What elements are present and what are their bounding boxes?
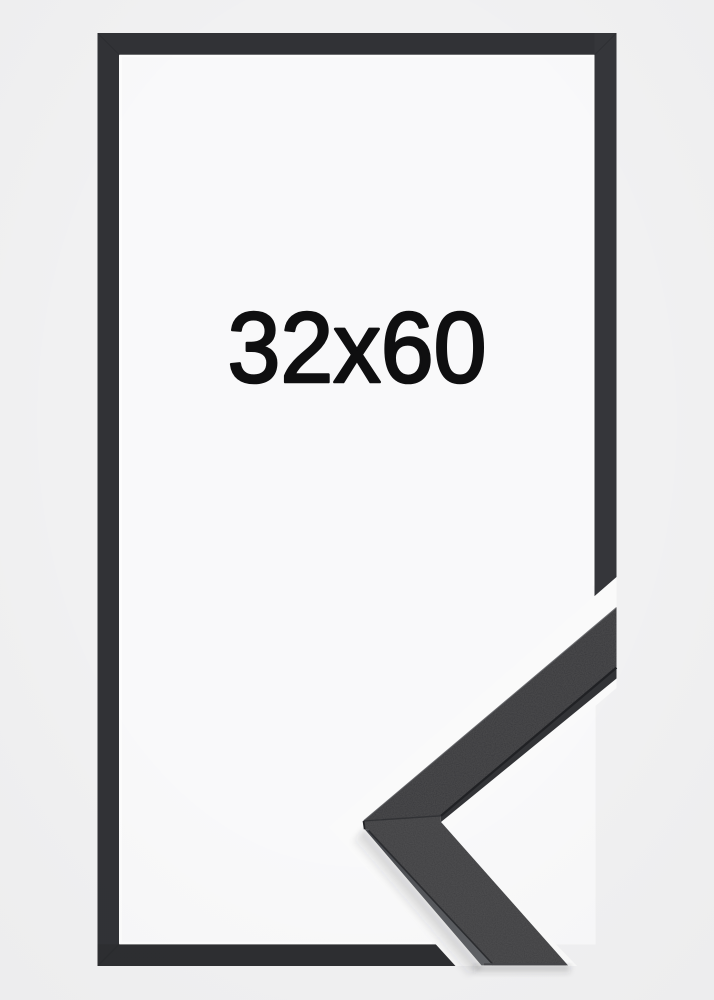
svg-text:32x60: 32x60	[228, 292, 487, 404]
